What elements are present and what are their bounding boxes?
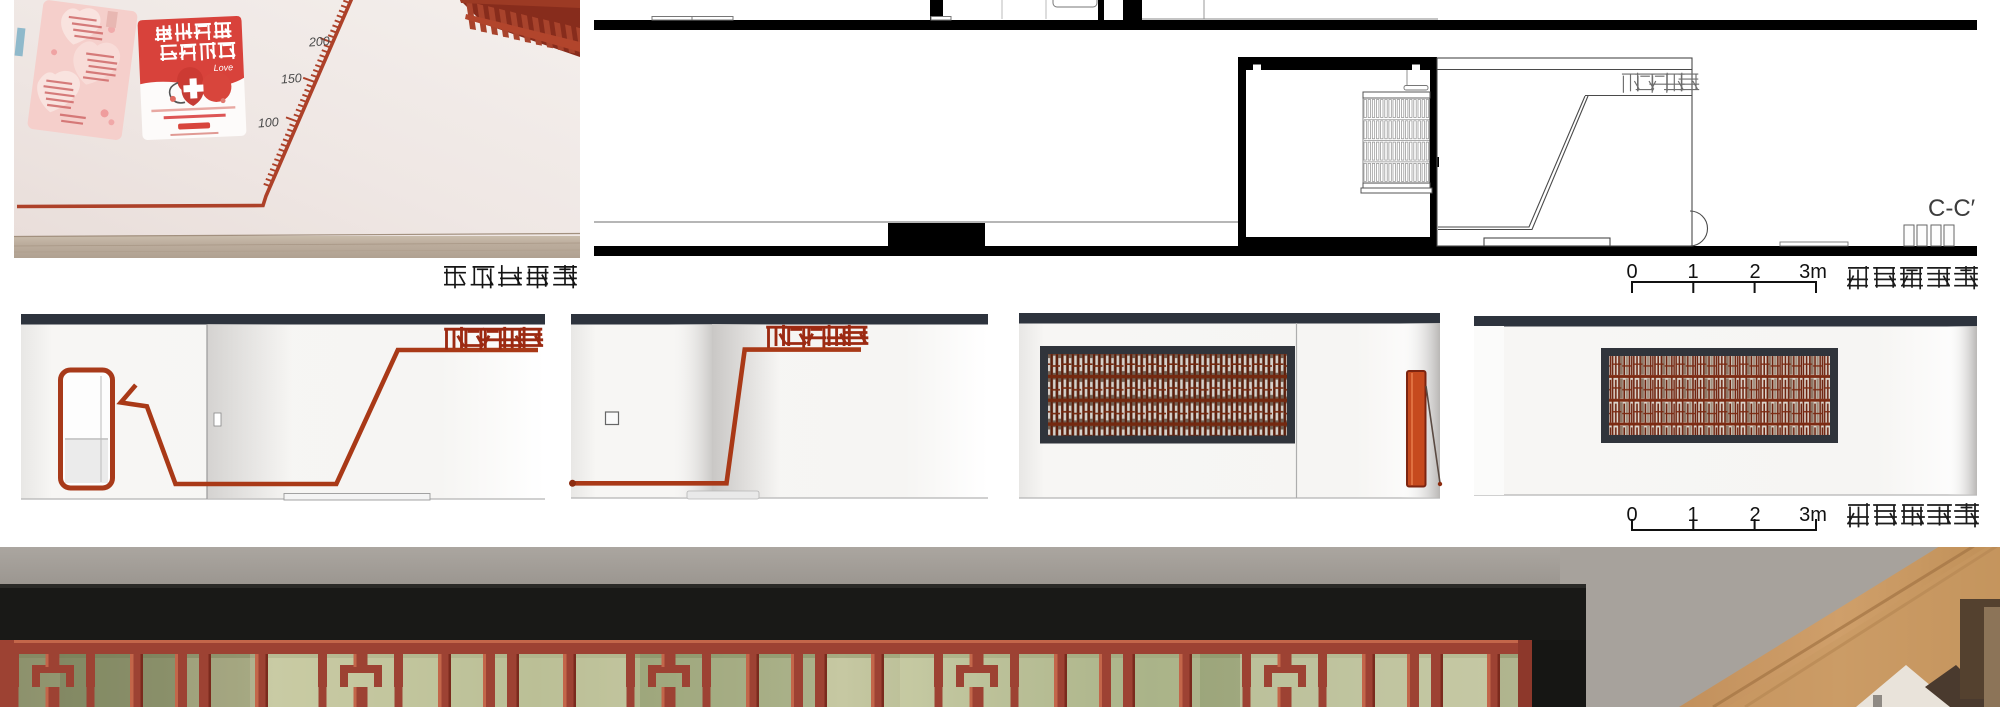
svg-text:1: 1	[1687, 504, 1698, 526]
svg-text:150: 150	[280, 71, 302, 86]
svg-text:2: 2	[1749, 504, 1760, 526]
svg-text:0: 0	[1626, 261, 1637, 283]
svg-text:3m: 3m	[1799, 504, 1827, 526]
svg-text:200: 200	[307, 34, 330, 49]
svg-text:1: 1	[1687, 261, 1698, 283]
svg-text:2: 2	[1749, 261, 1760, 283]
svg-text:100: 100	[257, 115, 279, 130]
svg-text:C-C′: C-C′	[1928, 195, 1976, 222]
svg-text:Love: Love	[213, 62, 233, 73]
svg-text:3m: 3m	[1799, 261, 1827, 283]
svg-text:0: 0	[1626, 504, 1637, 526]
